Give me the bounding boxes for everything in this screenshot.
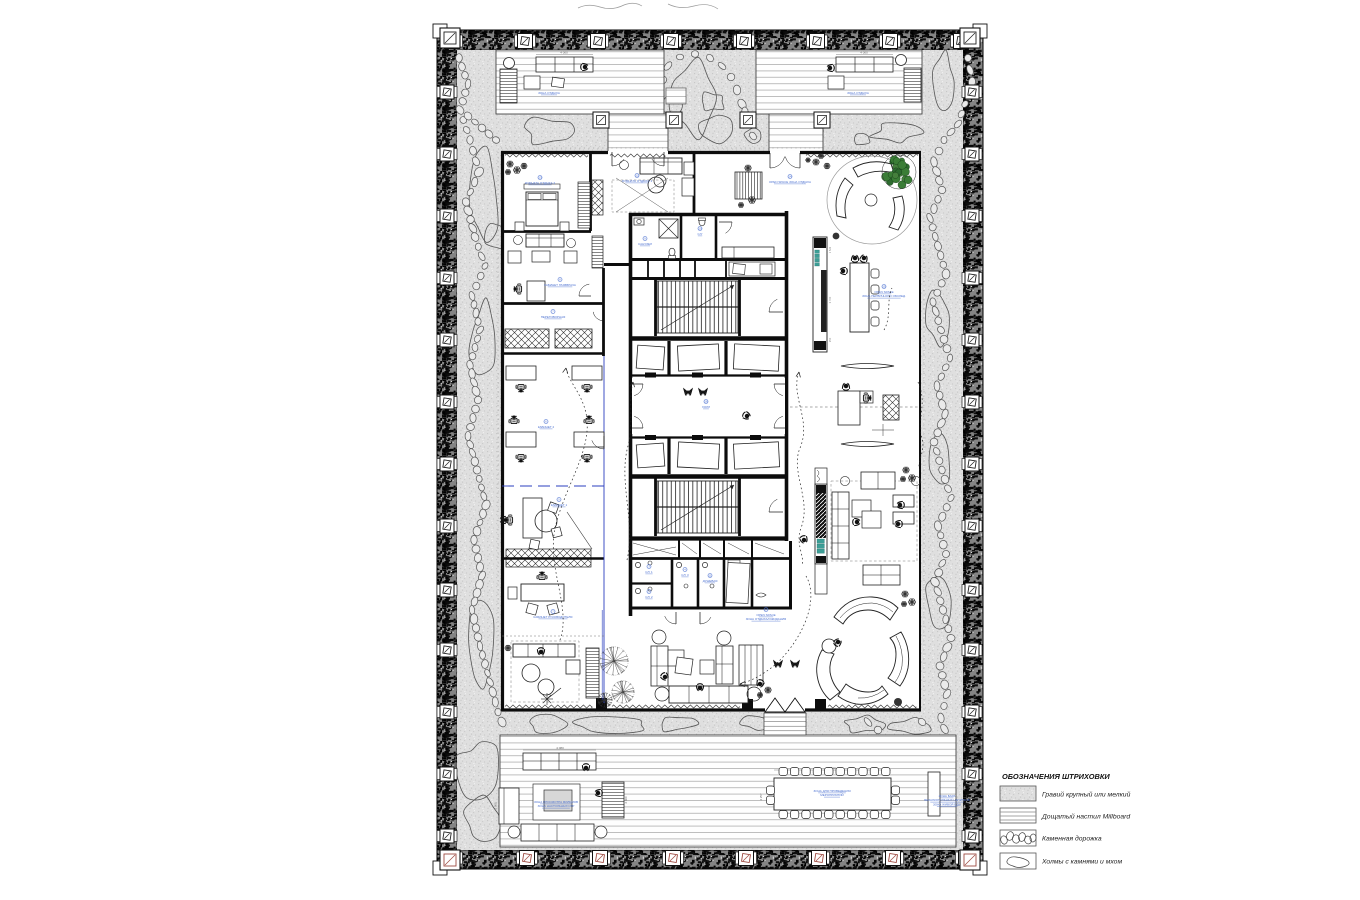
svg-text:МЕРОПРИЯТИЙ: МЕРОПРИЯТИЙ — [820, 793, 843, 797]
svg-text:4 257: 4 257 — [759, 793, 763, 800]
svg-text:250: 250 — [828, 337, 832, 342]
svg-text:4 000: 4 000 — [560, 50, 568, 54]
svg-text:1 522: 1 522 — [828, 246, 832, 253]
svg-text:4 080: 4 080 — [556, 746, 564, 750]
svg-text:ЗОНА НАСТОЛЬНЫХ ИГР: ЗОНА НАСТОЛЬНЫХ ИГР — [538, 804, 575, 808]
svg-text:3 700: 3 700 — [828, 296, 832, 303]
svg-text:4 000: 4 000 — [860, 50, 868, 54]
svg-text:Холмы с камнями и мхом: Холмы с камнями и мхом — [1041, 859, 1122, 866]
svg-text:ОБОЗНАЧЕНИЯ ШТРИХОВКИ: ОБОЗНАЧЕНИЯ ШТРИХОВКИ — [1002, 772, 1110, 781]
svg-text:КОМНАТА ОТДЫХА 1: КОМНАТА ОТДЫХА 1 — [622, 179, 653, 183]
svg-text:КАБИНЕТ 1: КАБИНЕТ 1 — [551, 503, 568, 507]
svg-text:ЗОНА ПЕРВИЧНОГО ОБСЛЕД.: ЗОНА ПЕРВИЧНОГО ОБСЛЕД. — [862, 294, 906, 298]
svg-text:КАБИНЕТ РУКОВОДИТЕЛЯ: КАБИНЕТ РУКОВОДИТЕЛЯ — [534, 615, 573, 619]
svg-text:ДУШЕВАЯ: ДУШЕВАЯ — [703, 579, 718, 583]
svg-text:ЗОНА ЖИВОЙ ЕДЫ: ЗОНА ЖИВОЙ ЕДЫ — [933, 802, 961, 806]
svg-text:С/У 1: С/У 1 — [645, 570, 653, 574]
svg-text:ЗОНА ОТДЫХА/ОЖИДАНИЯ: ЗОНА ОТДЫХА/ОЖИДАНИЯ — [746, 617, 786, 621]
svg-text:Дощатый настил Millboard: Дощатый настил Millboard — [1041, 813, 1130, 821]
svg-text:OPEN SPACE ЗОНА ОТДЫХА: OPEN SPACE ЗОНА ОТДЫХА — [769, 180, 811, 184]
svg-text:С/У 3: С/У 3 — [681, 573, 689, 577]
svg-text:С/У: С/У — [698, 232, 703, 236]
svg-text:КОМНАТА ОТДЫХА 2: КОМНАТА ОТДЫХА 2 — [525, 181, 556, 185]
svg-text:КАБИНЕТ ГЛАВВРАЧА: КАБИНЕТ ГЛАВВРАЧА — [544, 283, 576, 287]
svg-text:2 000: 2 000 — [494, 802, 498, 809]
svg-text:С/У 2: С/У 2 — [645, 595, 653, 599]
svg-text:Каменная дорожка: Каменная дорожка — [1042, 835, 1102, 843]
svg-text:ЗОНА ОТДЫХА: ЗОНА ОТДЫХА — [538, 91, 560, 95]
svg-text:2 400: 2 400 — [624, 796, 628, 803]
svg-text:ПЕРЕГОВОРНАЯ: ПЕРЕГОВОРНАЯ — [541, 315, 566, 319]
svg-text:ЗОНА ОТДЫХА: ЗОНА ОТДЫХА — [847, 91, 869, 95]
svg-text:ХОЛЛ: ХОЛЛ — [702, 405, 710, 409]
svg-text:Гравий крупный или мелкий: Гравий крупный или мелкий — [1042, 791, 1131, 799]
svg-text:КАБИНЕТ 2: КАБИНЕТ 2 — [538, 425, 555, 429]
svg-text:САНУЗЕЛ: САНУЗЕЛ — [638, 242, 652, 246]
